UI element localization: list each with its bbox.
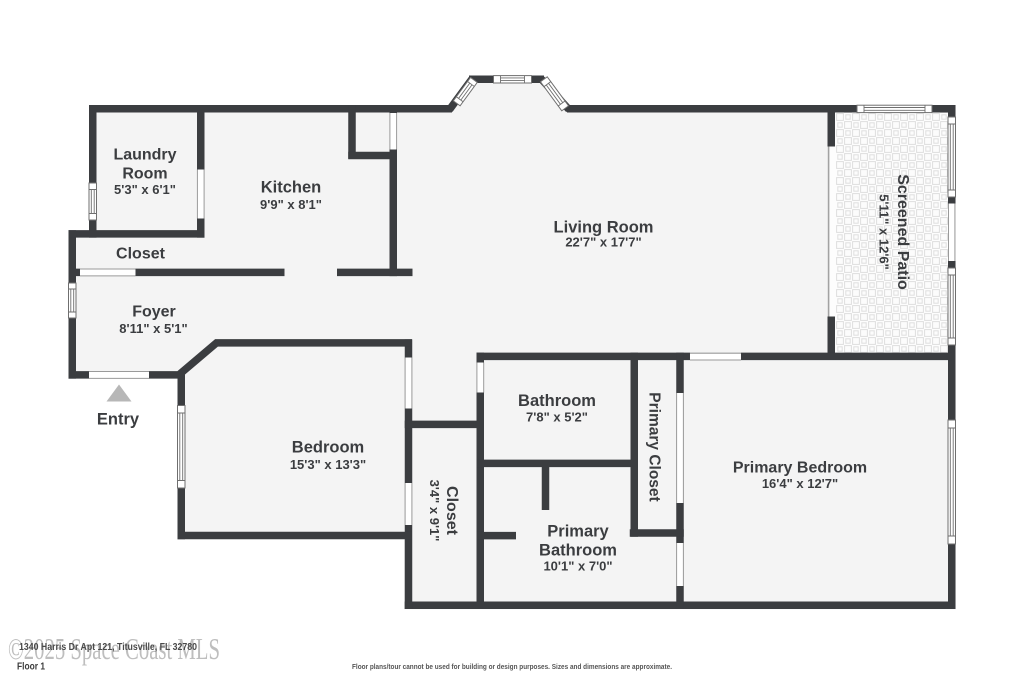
svg-text:Entry: Entry (97, 410, 140, 428)
svg-text:Closet: Closet (116, 246, 166, 263)
svg-text:Primary Closet: Primary Closet (646, 392, 663, 501)
svg-text:3'4" x 9'1": 3'4" x 9'1" (427, 480, 442, 542)
svg-text:Room: Room (122, 165, 167, 182)
svg-text:5'3" x 6'1": 5'3" x 6'1" (114, 182, 176, 197)
svg-text:5'11" x 12'6": 5'11" x 12'6" (877, 194, 892, 270)
svg-text:Floor plans/tour cannot be use: Floor plans/tour cannot be used for buil… (352, 664, 672, 671)
svg-text:Bathroom: Bathroom (518, 392, 596, 410)
svg-text:Kitchen: Kitchen (261, 178, 322, 196)
svg-text:9'9" x 8'1": 9'9" x 8'1" (260, 197, 322, 212)
svg-text:Laundry: Laundry (113, 147, 176, 164)
svg-text:Bathroom: Bathroom (539, 542, 617, 560)
svg-text:1340 Harris Dr Apt 121, Titusv: 1340 Harris Dr Apt 121, Titusville, FL 3… (19, 642, 197, 653)
svg-text:10'1" x 7'0": 10'1" x 7'0" (543, 559, 612, 574)
svg-text:16'4" x 12'7": 16'4" x 12'7" (762, 476, 838, 491)
svg-text:Bedroom: Bedroom (292, 438, 364, 456)
svg-text:8'11" x 5'1": 8'11" x 5'1" (119, 321, 187, 336)
svg-text:Screened Patio: Screened Patio (894, 174, 911, 290)
svg-text:15'3" x 13'3": 15'3" x 13'3" (290, 457, 366, 472)
svg-text:Closet: Closet (443, 486, 460, 536)
svg-text:Primary: Primary (547, 522, 609, 540)
svg-text:Floor 1: Floor 1 (17, 662, 45, 673)
svg-text:Foyer: Foyer (132, 304, 176, 321)
svg-text:22'7" x 17'7": 22'7" x 17'7" (565, 235, 641, 250)
svg-text:7'8" x 5'2": 7'8" x 5'2" (526, 410, 588, 425)
svg-text:Primary Bedroom: Primary Bedroom (733, 460, 867, 477)
